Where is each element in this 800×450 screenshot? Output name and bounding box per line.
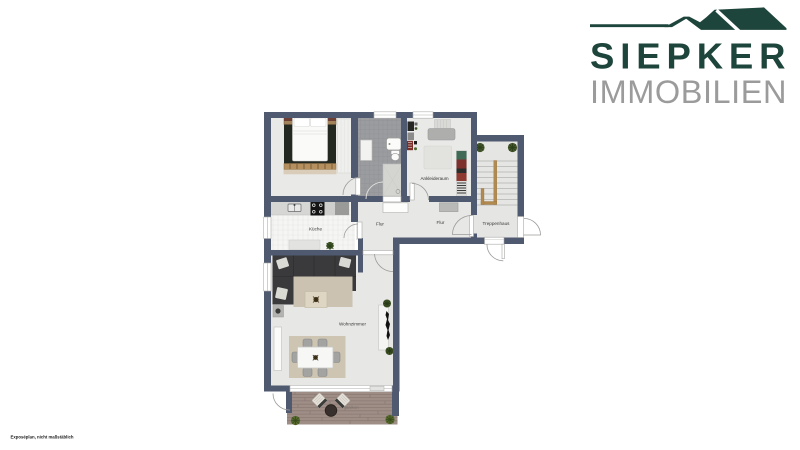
svg-text:IMMOBILIEN: IMMOBILIEN: [590, 74, 787, 110]
svg-text:Flur: Flur: [437, 220, 445, 225]
svg-text:Küche: Küche: [309, 227, 322, 232]
svg-text:Exposéplan, nicht maßstäblich: Exposéplan, nicht maßstäblich: [11, 435, 74, 440]
svg-text:Flur: Flur: [376, 222, 384, 227]
svg-text:Balkon: Balkon: [345, 405, 359, 410]
svg-text:Wohnzimmer: Wohnzimmer: [339, 322, 366, 327]
svg-text:Treppenhaus: Treppenhaus: [483, 221, 511, 226]
svg-text:Ankleideraum: Ankleideraum: [420, 176, 448, 181]
